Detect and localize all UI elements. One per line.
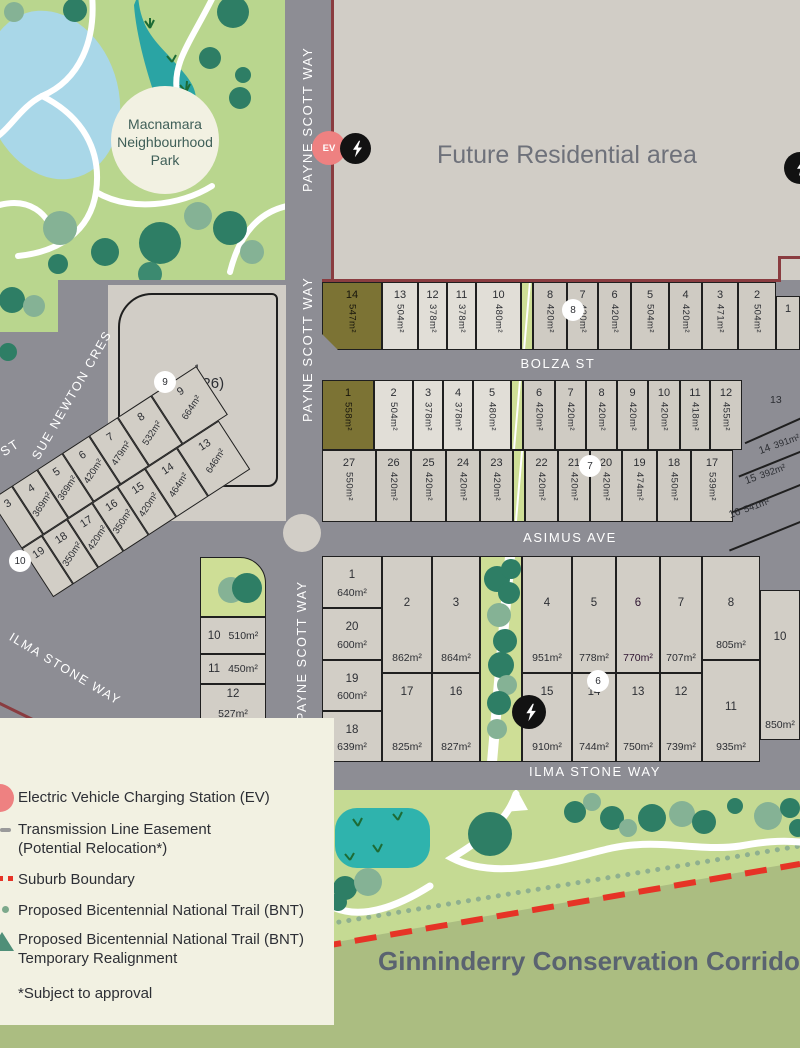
legend-item-suburb-boundary: Suburb Boundary	[18, 870, 135, 889]
lot-number: 13	[196, 437, 213, 454]
street-label-ilma-horizontal: ILMA STONE WAY	[515, 764, 675, 779]
lot-number: 14	[346, 289, 358, 301]
lot-number: 11	[208, 663, 220, 675]
lot-column: 8805m²11935m²	[702, 556, 760, 762]
lot[interactable]: 17539m²	[691, 450, 733, 522]
lot-number: 12	[720, 387, 732, 399]
lot-area: 420m²	[545, 304, 556, 333]
corridor-label: Ginninderry Conservation Corridor	[378, 946, 800, 977]
park-label: Macnamara Neighbourhood Park	[103, 115, 227, 169]
lot-area: 420m²	[627, 402, 638, 431]
map-marker[interactable]: 7	[579, 455, 601, 477]
lot-area: 350m²	[60, 540, 84, 569]
lot-area: 600m²	[337, 690, 367, 702]
lot[interactable]: 12378m²	[418, 282, 447, 350]
lot-column: 10850m²	[760, 556, 800, 762]
lot[interactable]: 22420m²	[525, 450, 558, 522]
lot[interactable]: 26420m²	[376, 450, 411, 522]
legend-transmission-icon	[0, 828, 11, 832]
lot-area: 378m²	[423, 402, 434, 431]
legend-ev-icon	[0, 784, 14, 812]
lot-number: 3	[453, 597, 459, 609]
lot[interactable]: 1558m²	[322, 380, 374, 450]
lot-number: 15	[541, 686, 554, 698]
lot-number: 2	[390, 387, 396, 399]
lot-number: 20	[600, 457, 612, 469]
lot-area: 420m²	[609, 304, 620, 333]
suburb-boundary-line-horizontal	[322, 279, 780, 282]
lot-number: 10	[774, 631, 787, 643]
lot[interactable]: 13504m²	[382, 282, 418, 350]
lot-number: 6	[635, 597, 641, 609]
lot-area: 935m²	[716, 741, 746, 753]
lot[interactable]: 27550m²	[322, 450, 376, 522]
lot-number: 14	[757, 442, 772, 457]
lot[interactable]: 16541m²	[727, 495, 771, 521]
lot-number: 3	[717, 289, 723, 301]
lot[interactable]: 7707m²	[660, 556, 702, 673]
lot-area: 420m²	[423, 472, 434, 501]
lot-area: 827m²	[441, 741, 471, 753]
lot-area: 420m²	[81, 457, 105, 486]
street-label-payne-scott-1: PAYNE SCOTT WAY	[300, 58, 315, 192]
lot-number: 12	[675, 686, 688, 698]
lot-number: 7	[579, 289, 585, 301]
lot-number: 11	[456, 289, 467, 301]
lot-number: 10	[208, 630, 221, 642]
lot[interactable]: 10510m²	[200, 617, 266, 654]
map-marker[interactable]: 6	[587, 670, 609, 692]
lot-number: 15	[130, 480, 147, 497]
lot-area: 378m²	[453, 402, 464, 431]
lot[interactable]: 6420m²	[598, 282, 631, 350]
lot-number: 11	[725, 701, 737, 713]
lot-area: 504m²	[752, 304, 763, 333]
lot-area: 664m²	[179, 394, 203, 423]
lot[interactable]: 10420m²	[648, 380, 680, 450]
street-label-asimus: ASIMUS AVE	[500, 530, 640, 545]
lot-area: 639m²	[337, 741, 367, 753]
lot-number: 16	[103, 497, 120, 514]
green-strip	[511, 380, 523, 450]
lot-number: 26	[387, 457, 399, 469]
lot[interactable]: 1640m²	[322, 556, 382, 608]
map-marker[interactable]: 9	[154, 371, 176, 393]
lot[interactable]: 1	[776, 296, 800, 350]
lot-number: 8	[547, 289, 553, 301]
park-area: Macnamara Neighbourhood Park	[0, 0, 285, 280]
green-strip	[521, 282, 533, 350]
lot-number: 4	[455, 387, 461, 399]
lot-area: 378m²	[456, 304, 467, 333]
lot-area: 464m²	[167, 471, 191, 500]
legend-item-ev: Electric Vehicle Charging Station (EV)	[18, 788, 270, 807]
lot-number: 27	[343, 457, 355, 469]
lot-number: 7	[678, 597, 684, 609]
lot-column: 6770m²13750m²	[616, 556, 660, 762]
lot-number: 5	[489, 387, 495, 399]
lot-column: 3864m²16827m²	[432, 556, 480, 762]
lot[interactable]: 4378m²	[443, 380, 473, 450]
lot-number: 1	[345, 387, 351, 399]
lot-area: 805m²	[716, 639, 746, 651]
lot-area: 420m²	[491, 472, 502, 501]
legend-item-bnt: Proposed Bicentennial National Trail (BN…	[18, 901, 304, 920]
lot-area: 420m²	[659, 402, 670, 431]
lot-number: 6	[611, 289, 617, 301]
lot[interactable]: 6420m²	[523, 380, 555, 450]
green-strip	[480, 556, 522, 762]
lot-number: 19	[30, 545, 47, 562]
lot-number: 8	[728, 597, 734, 609]
lot-area: 504m²	[388, 402, 399, 431]
lot-number: 12	[227, 688, 240, 700]
lot-number: 4	[544, 597, 550, 609]
lot[interactable]: 12739m²	[660, 673, 702, 762]
lot-column: 2862m²17825m²	[382, 556, 432, 762]
lot-area: 471m²	[715, 304, 726, 333]
lot-number: 2	[754, 289, 760, 301]
lot-number: 22	[535, 457, 547, 469]
lot[interactable]: 8805m²	[702, 556, 760, 660]
lot[interactable]: 7420m²	[555, 380, 586, 450]
lot-number: 12	[426, 289, 438, 301]
lot[interactable]: 11935m²	[702, 660, 760, 762]
lot-number: 19	[633, 457, 645, 469]
lot[interactable]: 18450m²	[657, 450, 691, 522]
lot-area: 600m²	[337, 639, 367, 651]
map-marker[interactable]: 10	[9, 550, 31, 572]
lot[interactable]: 3471m²	[702, 282, 738, 350]
legend-panel: Electric Vehicle Charging Station (EV) T…	[0, 718, 334, 1025]
lot-area: 420m²	[137, 491, 161, 520]
lot-area: 541m²	[742, 496, 771, 516]
lot-number: 17	[78, 514, 95, 531]
lot-number: 23	[490, 457, 502, 469]
lot[interactable]: 3378m²	[413, 380, 443, 450]
lot[interactable]: 23420m²	[480, 450, 513, 522]
lot-number: 15	[743, 472, 758, 487]
suburb-boundary-step-v	[778, 257, 781, 282]
lot-number: 6	[77, 449, 89, 462]
lot-number: 24	[457, 457, 469, 469]
lot-number: 16	[450, 686, 463, 698]
lot-number: 18	[668, 457, 680, 469]
lot-number: 10	[658, 387, 670, 399]
lot[interactable]: 10480m²	[476, 282, 521, 350]
lot[interactable]: 2862m²	[382, 556, 432, 673]
legend-item-bnt-realignment: Proposed Bicentennial National Trail (BN…	[18, 930, 304, 968]
street-label-payne-scott-2: PAYNE SCOTT WAY	[300, 288, 315, 422]
lot-number: 18	[346, 724, 359, 736]
west-stack: 10510m²11450m²12527m²	[200, 557, 266, 724]
lot-number: 17	[401, 686, 414, 698]
lot[interactable]: 3864m²	[432, 556, 480, 673]
lot-area: 850m²	[765, 719, 795, 731]
ev-bolt-icon-strip[interactable]	[512, 695, 546, 729]
lot[interactable]: 5778m²	[572, 556, 616, 673]
lot-area: 420m²	[534, 402, 545, 431]
lot-number: 13	[394, 289, 406, 301]
lot[interactable]: 11418m²	[680, 380, 710, 450]
street-label-bolza: BOLZA ST	[488, 356, 628, 371]
lot-area: 420m²	[569, 472, 580, 501]
lot-area: 420m²	[601, 472, 612, 501]
future-residential-area	[333, 0, 800, 280]
lot-area: 646m²	[203, 447, 227, 476]
lot[interactable]: 19600m²	[322, 660, 382, 711]
lot-area: 825m²	[392, 741, 422, 753]
lot[interactable]: 11450m²	[200, 654, 266, 684]
lot-area: 479m²	[109, 439, 133, 468]
lot-area: 707m²	[666, 652, 696, 664]
bolza-north-row: 14547m²13504m²12378m²11378m²10480m²8420m…	[322, 282, 800, 350]
ev-bolt-icon[interactable]	[340, 133, 371, 164]
legend-bnt-realignment-icon	[0, 932, 14, 951]
lot-number: 1	[785, 303, 791, 315]
lot-number: 8	[598, 387, 604, 399]
lot-area: 864m²	[441, 652, 471, 664]
lot[interactable]: 19474m²	[622, 450, 657, 522]
legend-item-transmission: Transmission Line Easement(Potential Rel…	[18, 820, 211, 858]
lot[interactable]: 8420m²	[533, 282, 567, 350]
left-edge-trees	[0, 280, 60, 370]
suburb-boundary-step-h	[778, 256, 800, 259]
lot-number: 25	[422, 457, 434, 469]
lot-area: 369m²	[55, 474, 79, 503]
lot-area: 550m²	[344, 472, 355, 501]
ilma-north-block: 1640m²20600m²19600m²18639m²2862m²17825m²…	[322, 556, 800, 762]
lot-area: 420m²	[536, 472, 547, 501]
lot-number: 14	[159, 461, 176, 478]
lot-area: 420m²	[680, 304, 691, 333]
future-residential-label: Future Residential area	[437, 141, 697, 170]
lot-number: 11	[689, 387, 700, 399]
lot-number: 5	[591, 597, 597, 609]
map-marker[interactable]: 8	[562, 299, 584, 321]
lot[interactable]: 14547m²	[322, 282, 382, 350]
lot-number: 17	[706, 457, 718, 469]
lot-column: 4951m²15910m²	[522, 556, 572, 762]
lot[interactable]: 4951m²	[522, 556, 572, 673]
lot-area: 480m²	[493, 304, 504, 333]
lot-number: 5	[51, 466, 63, 479]
lot-area: 474m²	[634, 472, 645, 501]
lot-number: 13	[770, 394, 782, 406]
lot-area: 547m²	[347, 304, 358, 333]
lot-number: 3	[425, 387, 431, 399]
lot[interactable]: 8420m²	[586, 380, 617, 450]
lot-number: 9	[175, 385, 187, 398]
green-reserve	[200, 557, 266, 617]
lot[interactable]: 5504m²	[631, 282, 669, 350]
lot-number: 1	[349, 569, 355, 581]
lot-area: 504m²	[645, 304, 656, 333]
estate-map: Macnamara Neighbourhood Park Future Resi…	[0, 0, 800, 1048]
bolza-south-row: 1558m²2504m²3378m²4378m²5480m²6420m²7420…	[322, 380, 742, 450]
lot-area: 862m²	[392, 652, 422, 664]
lot-number: 13	[632, 686, 645, 698]
lot-area: 739m²	[666, 741, 696, 753]
legend-footnote: *Subject to approval	[18, 984, 152, 1003]
lot[interactable]: 13750m²	[616, 673, 660, 762]
lot[interactable]: 24420m²	[446, 450, 480, 522]
lot-number: 19	[346, 673, 359, 685]
lot-number: 2	[404, 597, 410, 609]
lot-area: 450m²	[228, 663, 258, 675]
lot-area: 558m²	[343, 402, 354, 431]
lot[interactable]: 17825m²	[382, 673, 432, 762]
lot-area: 369m²	[30, 491, 54, 520]
lot-area: 770m²	[623, 652, 653, 664]
legend-bnt-icon	[2, 906, 9, 913]
lot-area: 744m²	[579, 741, 609, 753]
lot-column: 7707m²12739m²	[660, 556, 702, 762]
green-strip	[513, 450, 525, 522]
lot-number: 4	[682, 289, 688, 301]
lot[interactable]: 4420m²	[669, 282, 702, 350]
lot-number: 6	[536, 387, 542, 399]
lot-number: 8	[135, 411, 147, 424]
lot-number: 7	[567, 387, 573, 399]
lot[interactable]: 2504m²	[738, 282, 776, 350]
lot[interactable]: 11378m²	[447, 282, 476, 350]
lot[interactable]: 20600m²	[322, 608, 382, 660]
lot-area: 539m²	[707, 472, 718, 501]
lot-number: 9	[629, 387, 635, 399]
lot[interactable]: 5480m²	[473, 380, 511, 450]
asimus-north-row: 27550m²26420m²25420m²24420m²23420m²22420…	[322, 450, 733, 522]
lot-area: 450m²	[669, 472, 680, 501]
lot-area: 532m²	[140, 419, 164, 448]
lot-area: 420m²	[596, 402, 607, 431]
lot-number: 10	[492, 289, 504, 301]
legend-suburb-boundary-icon	[0, 876, 13, 881]
lot[interactable]: 16827m²	[432, 673, 480, 762]
lot-area: 640m²	[337, 587, 367, 599]
lot-number: 5	[647, 289, 653, 301]
lot-number: 7	[104, 431, 116, 444]
lot[interactable]: 10850m²	[760, 590, 800, 740]
street-label-payne-scott-3: PAYNE SCOTT WAY	[295, 595, 309, 721]
lot[interactable]: 12455m²	[710, 380, 742, 450]
lot-area: 420m²	[388, 472, 399, 501]
lot-area: 504m²	[395, 304, 406, 333]
lot[interactable]: 9420m²	[617, 380, 648, 450]
lot-area: 420m²	[458, 472, 469, 501]
lot-area: 910m²	[532, 741, 562, 753]
lot-area: 480m²	[487, 402, 498, 431]
lot-area: 420m²	[85, 524, 109, 553]
lot-area: 455m²	[721, 402, 732, 431]
lot-area: 420m²	[565, 402, 576, 431]
street-label-partial-st: ST	[0, 436, 22, 459]
roundabout	[283, 514, 321, 552]
lot-number: 18	[53, 530, 70, 547]
lot-area: 750m²	[623, 741, 653, 753]
lot[interactable]: 25420m²	[411, 450, 446, 522]
lot-number: 3	[2, 497, 14, 510]
lot[interactable]: 6770m²	[616, 556, 660, 673]
lot-area: 418m²	[690, 402, 701, 431]
lot-column: 5778m²14744m²	[572, 556, 616, 762]
lot[interactable]: 13	[770, 394, 782, 406]
lot-area: 378m²	[427, 304, 438, 333]
lot-area: 350m²	[110, 508, 134, 537]
lot-number: 4	[26, 482, 38, 495]
lot[interactable]: 2504m²	[374, 380, 413, 450]
lot-area: 391m²	[772, 432, 800, 452]
lot-area: 951m²	[532, 652, 562, 664]
lot-area: 778m²	[579, 652, 609, 664]
lot-area: 510m²	[229, 630, 259, 642]
lot-number: 20	[346, 621, 359, 633]
